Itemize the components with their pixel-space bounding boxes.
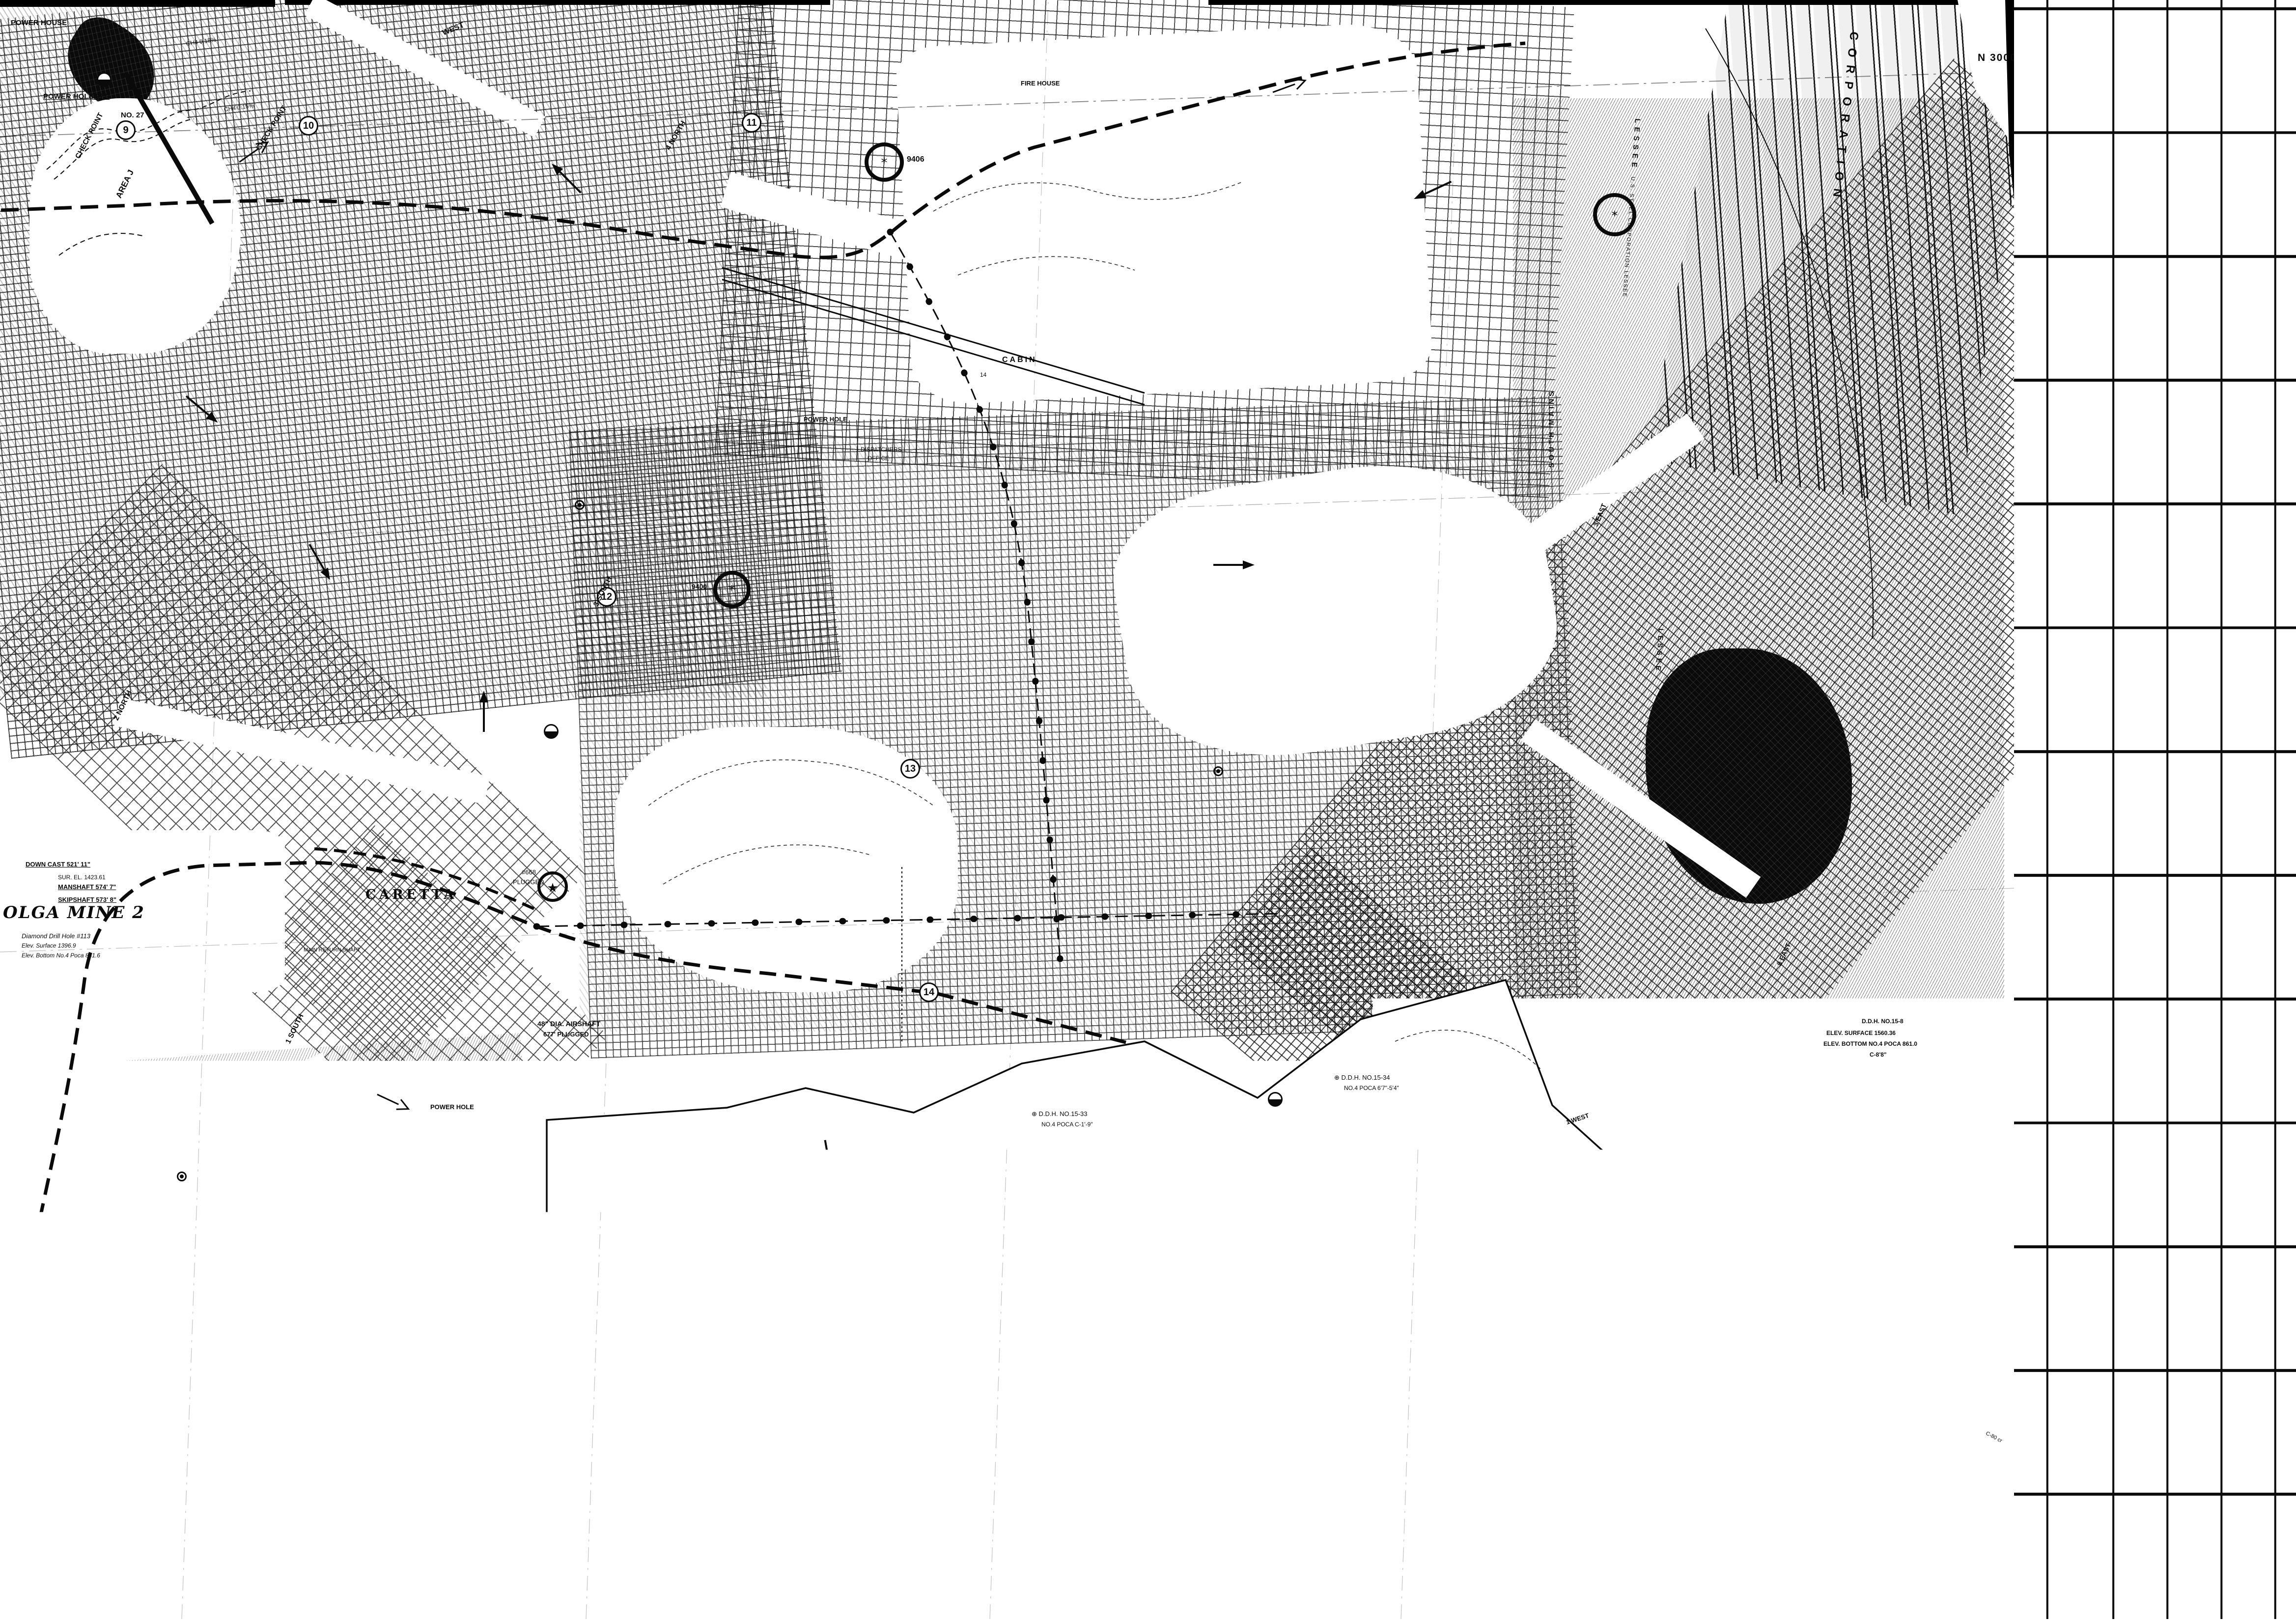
map-label-olga-mine-2: OLGA MINE 2	[3, 903, 145, 922]
map-title-line1: MAP SHOWING	[427, 1266, 732, 1313]
map-title-company: OLGA COAL COMPANY	[378, 1496, 771, 1528]
mile-marker: 13	[900, 759, 920, 779]
map-label-ddh158-bottom: ELEV. BOTTOM NO.4 POCA 861.0	[1823, 1040, 1917, 1047]
intake-air-arrow	[236, 76, 1307, 1114]
map-label-ddh158-surface: ELEV. SURFACE 1560.36	[1826, 1030, 1896, 1036]
legend-item: MAIN LINE TRACK	[1127, 1385, 1545, 1401]
map-label-dispatchers-office: OFFICE	[868, 455, 889, 462]
legend-item: BELT LINE	[1127, 1447, 1545, 1463]
legend-item-label: MAIN LINE TRACK	[1186, 1387, 1308, 1399]
map-label-677-plugged: 677' PLUGGED	[543, 1031, 589, 1038]
map-title-scale: SCALE 1"=500'	[422, 1586, 668, 1616]
map-label-ddh1535-seam: NO.4 POCA C-10'3"	[671, 1224, 724, 1231]
scanned-mine-map: ** *★	[0, 0, 2296, 1619]
graphic-scale: 500 0 500 1000 Scale, feet	[1369, 1510, 1533, 1552]
adjacent-sheet-grid	[2014, 0, 2296, 1619]
map-label-ddh113-bottom: Elev. Bottom No.4 Poca 841.6	[22, 952, 100, 959]
land-corporation-line1: POCAHONTAS LAND CORPORATION	[1081, 1220, 1555, 1241]
map-label-ddh1534-seam: NO.4 POCA 6'7"-5'4"	[1344, 1085, 1399, 1091]
map-label-ddh1534: ⊕ D.D.H. NO.15-34	[1334, 1074, 1390, 1082]
legend-item-label: ESCAPEWAY	[1186, 1589, 1269, 1601]
scale-tick-500l: 500	[1370, 1510, 1387, 1522]
return-air-icon	[1127, 1513, 1186, 1522]
fire-station-icon: *	[1127, 1544, 1186, 1553]
legend-item-label: FIRE STATION	[1186, 1542, 1280, 1554]
grid-label-e25000: E 25000	[980, 1582, 992, 1619]
legend-item-label: INTAKE AIR	[1186, 1496, 1264, 1508]
legend-item: AIRSHAFT	[1127, 1416, 1545, 1432]
mile-marker: 15	[1895, 1361, 1915, 1381]
power-bore-hole-symbol	[177, 1172, 187, 1181]
legend-item-label: RECTIFIER	[1186, 1527, 1259, 1538]
map-label-ddh158-c: C-8'8"	[1870, 1051, 1887, 1058]
map-label-ddh158: D.D.H. NO.15-8	[1862, 1018, 1904, 1025]
escapeway-icon	[1127, 1594, 1186, 1595]
map-title-line4: MINES IN NO.4 POCAHONTAS SEAM	[196, 1430, 938, 1473]
airshaft-icon	[1127, 1417, 1186, 1431]
map-label-down-cast: DOWN CAST 521' 11"	[26, 861, 90, 868]
title-scale-bar	[461, 1613, 549, 1621]
airshaft-symbol	[544, 724, 559, 739]
map-label-skipshaft: SKIPSHAFT 573' 8"	[58, 896, 116, 903]
legend-item-label: TELEPHONE	[1186, 1480, 1267, 1492]
map-label-ddh113-elev: Elev. Surface 1396.9	[22, 942, 76, 949]
map-title-line3: AND	[314, 1404, 835, 1430]
sheet-corner	[1958, 0, 2014, 147]
power-bore-hole-icon	[1127, 1435, 1186, 1445]
legend-item: POWER BORE HOLE	[1127, 1432, 1545, 1448]
mile-marker: 9	[116, 120, 136, 140]
legend-item-label: RETURN AIR	[1186, 1511, 1269, 1523]
map-label-9400: 9400	[692, 583, 707, 590]
power-bore-hole-symbol	[575, 500, 585, 510]
legend-item-label: MILES FROM BOTTOM NO. 2 MINE	[1186, 1402, 1412, 1414]
legend-item: GAS PIPELINE	[1127, 1556, 1545, 1572]
map-label-ddh1532-seam: NO.4 POCA C-1'-8"	[906, 1331, 957, 1338]
map-label-south-mains: SOUTH MAINS	[1547, 389, 1556, 468]
map-label-ddh1533-seam: NO.4 POCA C-1'-9"	[1041, 1121, 1093, 1128]
mile-marker: 14	[919, 982, 939, 1002]
legend-item: ESCAPEWAY	[1127, 1587, 1545, 1603]
airshaft-symbol	[1633, 1402, 1648, 1417]
scale-caption: Scale, feet	[1399, 1534, 1497, 1548]
legend: LEGEND MAIN LINE TRACK5MILES FROM BOTTOM…	[1127, 1340, 1545, 1602]
map-label-power-hole-2: POWER HOLE	[430, 1103, 474, 1111]
svg-text:*: *	[1612, 209, 1618, 224]
map-label-9406: 9406	[907, 155, 924, 164]
miles-circle-icon: 5	[1127, 1400, 1186, 1416]
haulage-corridor	[722, 268, 1145, 405]
belt-line-icon	[1127, 1453, 1186, 1457]
airshaft-symbol	[1268, 1092, 1283, 1107]
map-label-caretta: CARETTA	[365, 887, 457, 902]
map-title-line2: DIAMOND DRILL HOLES	[314, 1350, 835, 1395]
mile-marker: 11	[742, 113, 761, 133]
land-corporation-line2: UNITED STATES STEEL CORPORATION LESSEE	[1085, 1252, 1505, 1267]
map-label-power-house: POWER HOUSE	[11, 19, 67, 27]
map-title-county: McDOWELL COUNTY, W. VA.	[364, 1540, 786, 1572]
map-label-fire-house: FIRE HOUSE	[1021, 80, 1060, 87]
map-label-main-return: MAIN RETURN SHAFT	[304, 947, 361, 953]
legend-item-label: POWER BORE HOLE	[1186, 1434, 1319, 1446]
power-line-icon	[1127, 1577, 1186, 1581]
legend-item: 5MILES FROM BOTTOM NO. 2 MINE	[1127, 1401, 1545, 1417]
gas-well-star: ** *★	[547, 156, 1618, 895]
power-line	[536, 232, 1277, 959]
gas-well-symbol	[539, 144, 1634, 900]
legend-item: *GAS WELL	[1127, 1463, 1545, 1479]
contour-lines	[648, 182, 1542, 1071]
telephone-icon	[1127, 1482, 1186, 1489]
map-label-power-hole-971: POWER HOLE 971'	[43, 92, 110, 101]
legend-item-label: GAS PIPELINE	[1186, 1558, 1282, 1569]
map-label-cabin: CABIN	[1002, 356, 1037, 364]
map-label-cabin-14: 14	[980, 371, 986, 378]
map-label-668: #668	[522, 868, 536, 876]
map-label-668-plugged: PLUGGED	[513, 878, 544, 886]
airshaft-symbol	[97, 72, 112, 87]
gas-well-icon: *	[1127, 1462, 1186, 1480]
map-label-ddh113: Diamond Drill Hole #113	[22, 932, 90, 940]
map-label-ddh1535: ⊕ D.D.H. NO.15-35	[662, 1213, 714, 1220]
legend-item-label: POWER LINE	[1186, 1573, 1271, 1585]
svg-text:*: *	[881, 156, 888, 170]
map-label-ddh1532: ⊕ D.D.H. NO.15-32	[896, 1320, 952, 1328]
map-label-48-airshaft: 48" DIA. AIRSHAFT	[537, 1020, 600, 1028]
main-line-track-icon	[1127, 1392, 1186, 1395]
map-label-dispatchers: DISPATCHERS	[861, 446, 902, 453]
intake-air-icon	[1127, 1498, 1186, 1505]
power-bore-hole-symbol	[1213, 766, 1223, 776]
map-label-ddh1533: ⊕ D.D.H. NO.15-33	[1032, 1110, 1087, 1118]
legend-item-label: GAS WELL	[1186, 1465, 1257, 1477]
legend-item-label: BELT LINE	[1186, 1449, 1257, 1461]
svg-text:*: *	[729, 583, 735, 598]
svg-text:★: ★	[547, 881, 558, 895]
legend-heading: LEGEND	[1201, 1340, 1545, 1357]
map-label-no27: NO. 27	[121, 111, 144, 119]
gas-pipeline-icon	[1127, 1562, 1186, 1565]
rectifier-icon	[1127, 1529, 1186, 1537]
sheet-number: 4	[1463, 1491, 1491, 1526]
return-air-arrow	[183, 161, 1996, 1182]
scale-bar-checker	[1370, 1523, 1415, 1533]
map-label-power-hole: POWER HOLE	[804, 416, 847, 423]
map-label-manshaft: MANSHAFT 574' 7"	[58, 883, 116, 891]
legend-item: POWER LINE	[1127, 1571, 1545, 1587]
legend-item-label: AIRSHAFT	[1186, 1418, 1254, 1430]
scale-tick-0: 0	[1412, 1512, 1418, 1524]
map-label-sur-el: SUR. EL. 1423.61	[58, 874, 106, 881]
mile-marker: 10	[299, 116, 318, 136]
grid-label-e15000: 15000	[173, 1590, 184, 1617]
scale-tick-1000: 1000	[1496, 1516, 1518, 1528]
